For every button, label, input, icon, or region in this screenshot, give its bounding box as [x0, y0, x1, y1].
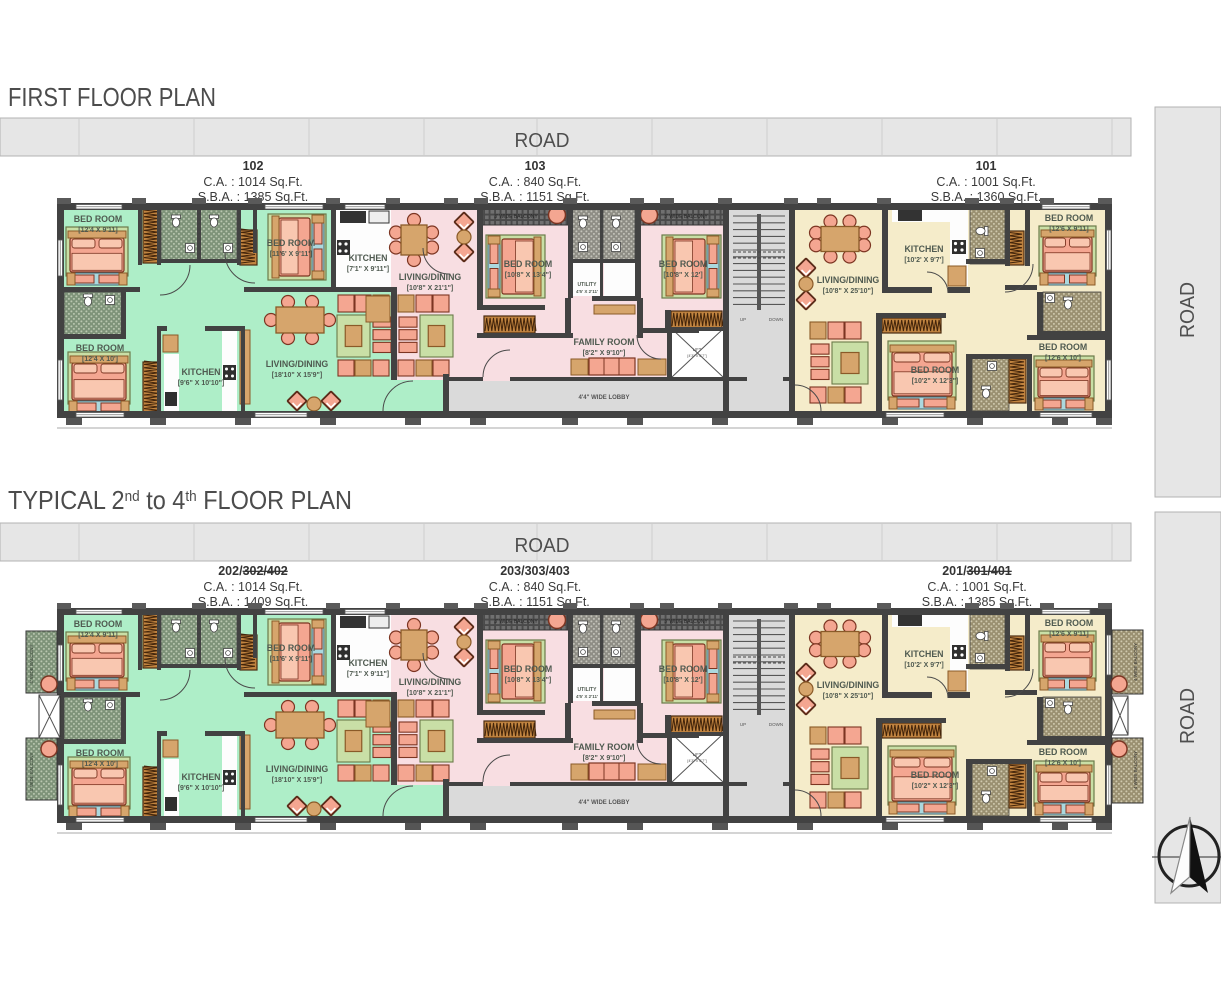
svg-text:C.A. : 1001 Sq.Ft.: C.A. : 1001 Sq.Ft.: [936, 175, 1035, 189]
svg-text:BED ROOM: BED ROOM: [504, 259, 552, 269]
svg-text:[9'6" X 10'10"]: [9'6" X 10'10"]: [178, 380, 225, 387]
svg-text:BED ROOM: BED ROOM: [267, 238, 315, 248]
svg-text:[18'10" X 15'9"]: [18'10" X 15'9"]: [272, 372, 322, 379]
svg-text:KITCHEN: KITCHEN: [904, 244, 943, 254]
svg-text:ROAD: ROAD: [515, 130, 570, 152]
svg-text:C.A. : 840 Sq.Ft.: C.A. : 840 Sq.Ft.: [489, 580, 581, 594]
svg-text:UTILITY: UTILITY: [578, 282, 598, 288]
svg-text:[11'6' X 9'11']: [11'6' X 9'11']: [270, 251, 312, 258]
svg-text:TYPICAL 2nd to 4th FLOOR PLAN: TYPICAL 2nd to 4th FLOOR PLAN: [8, 485, 352, 515]
svg-text:102: 102: [243, 159, 264, 173]
svg-text:BED ROOM: BED ROOM: [1045, 213, 1093, 223]
svg-text:203/303/403: 203/303/403: [500, 564, 570, 578]
svg-text:[10'8" X 21'1"]: [10'8" X 21'1"]: [407, 285, 454, 292]
svg-text:LIVING/DINING: LIVING/DINING: [817, 275, 880, 285]
svg-text:[12'4 X 10']: [12'4 X 10']: [82, 356, 118, 363]
svg-text:4 WIDE BALCONY: 4 WIDE BALCONY: [1133, 751, 1138, 789]
svg-text:ROAD: ROAD: [515, 535, 570, 557]
svg-text:[12'6 X 9'11]: [12'6 X 9'11]: [1049, 226, 1089, 233]
svg-text:BED ROOM: BED ROOM: [911, 365, 959, 375]
svg-text:4' WIDE BALCONY: 4' WIDE BALCONY: [29, 644, 34, 683]
svg-text:DOWN: DOWN: [769, 317, 783, 322]
svg-text:4'4" WIDE LOBBY: 4'4" WIDE LOBBY: [579, 395, 630, 401]
svg-text:FAMILY ROOM: FAMILY ROOM: [573, 337, 634, 347]
svg-text:[10'8" X 25'10"]: [10'8" X 25'10"]: [823, 288, 873, 295]
svg-text:[10'2" X 12'3"]: [10'2" X 12'3"]: [912, 378, 959, 385]
svg-text:[4'3" X 6'7"]: [4'3" X 6'7"]: [687, 354, 706, 358]
svg-text:[7'1" X 9'11"]: [7'1" X 9'11"]: [347, 266, 389, 273]
svg-text:S.B.A. : 1360 Sq.Ft.: S.B.A. : 1360 Sq.Ft.: [931, 190, 1041, 204]
svg-text:C.A. : 1014 Sq.Ft.: C.A. : 1014 Sq.Ft.: [203, 580, 302, 594]
svg-text:C.A. : 840 Sq.Ft.: C.A. : 840 Sq.Ft.: [489, 175, 581, 189]
svg-text:FIRST FLOOR PLAN: FIRST FLOOR PLAN: [8, 82, 216, 112]
svg-text:4' WIDE BALCONY: 4' WIDE BALCONY: [29, 752, 34, 791]
svg-text:BED ROOM: BED ROOM: [659, 259, 707, 269]
svg-text:4'5' X 2'11': 4'5' X 2'11': [576, 289, 598, 294]
svg-text:LIVING/DINING: LIVING/DINING: [399, 272, 462, 282]
svg-text:101: 101: [976, 159, 997, 173]
svg-text:202/302/402: 202/302/402: [218, 564, 288, 578]
svg-text:ROAD: ROAD: [1177, 282, 1199, 338]
svg-text:ROAD: ROAD: [1177, 688, 1199, 744]
svg-text:3' WIDE BALCONY: 3' WIDE BALCONY: [664, 214, 708, 220]
svg-text:3' WIDE BALCONY: 3' WIDE BALCONY: [494, 214, 538, 220]
svg-text:LIFT: LIFT: [693, 347, 702, 352]
svg-text:BED ROOM: BED ROOM: [74, 214, 122, 224]
svg-text:C.A. : 1001 Sq.Ft.: C.A. : 1001 Sq.Ft.: [927, 580, 1026, 594]
svg-text:4 WIDE BALCONY: 4 WIDE BALCONY: [1133, 643, 1138, 681]
svg-text:KITCHEN: KITCHEN: [348, 253, 387, 263]
svg-text:C.A. : 1014 Sq.Ft.: C.A. : 1014 Sq.Ft.: [203, 175, 302, 189]
svg-text:201/301/401: 201/301/401: [942, 564, 1012, 578]
svg-text:LIVING/DINING: LIVING/DINING: [266, 359, 329, 369]
svg-text:[10'8" X 12']: [10'8" X 12']: [663, 272, 702, 279]
svg-text:BED ROOM: BED ROOM: [76, 343, 124, 353]
svg-text:[10'8" X 13'4"]: [10'8" X 13'4"]: [505, 272, 552, 279]
svg-text:103: 103: [525, 159, 546, 173]
svg-text:BED ROOM: BED ROOM: [1039, 342, 1087, 352]
svg-text:[12'4 X 9'11]: [12'4 X 9'11]: [78, 227, 118, 234]
svg-text:[12'6 X 10']: [12'6 X 10']: [1045, 355, 1081, 362]
svg-text:[8'2" X 9'10"]: [8'2" X 9'10"]: [583, 350, 626, 357]
svg-text:UP: UP: [740, 317, 746, 322]
svg-text:[10'2' X 9'7']: [10'2' X 9'7']: [904, 257, 943, 264]
svg-text:KITCHEN: KITCHEN: [181, 367, 220, 377]
